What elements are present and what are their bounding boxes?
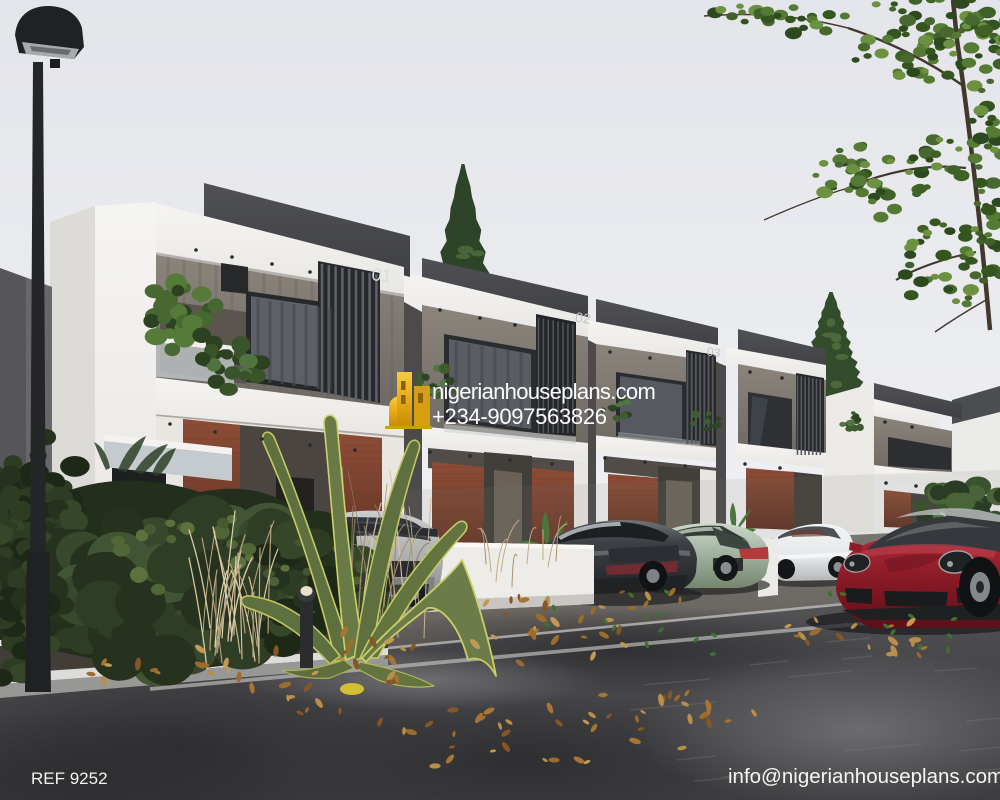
- svg-text:info@nigerianhouseplans.com: info@nigerianhouseplans.com: [728, 765, 1000, 788]
- svg-text:01: 01: [371, 264, 393, 286]
- svg-text:nigerianhouseplans.com: nigerianhouseplans.com: [432, 379, 655, 404]
- svg-text:03: 03: [706, 344, 721, 360]
- svg-text:02: 02: [574, 309, 592, 327]
- svg-text:REF 9252: REF 9252: [31, 769, 108, 788]
- svg-text:+234-9097563826: +234-9097563826: [432, 404, 607, 429]
